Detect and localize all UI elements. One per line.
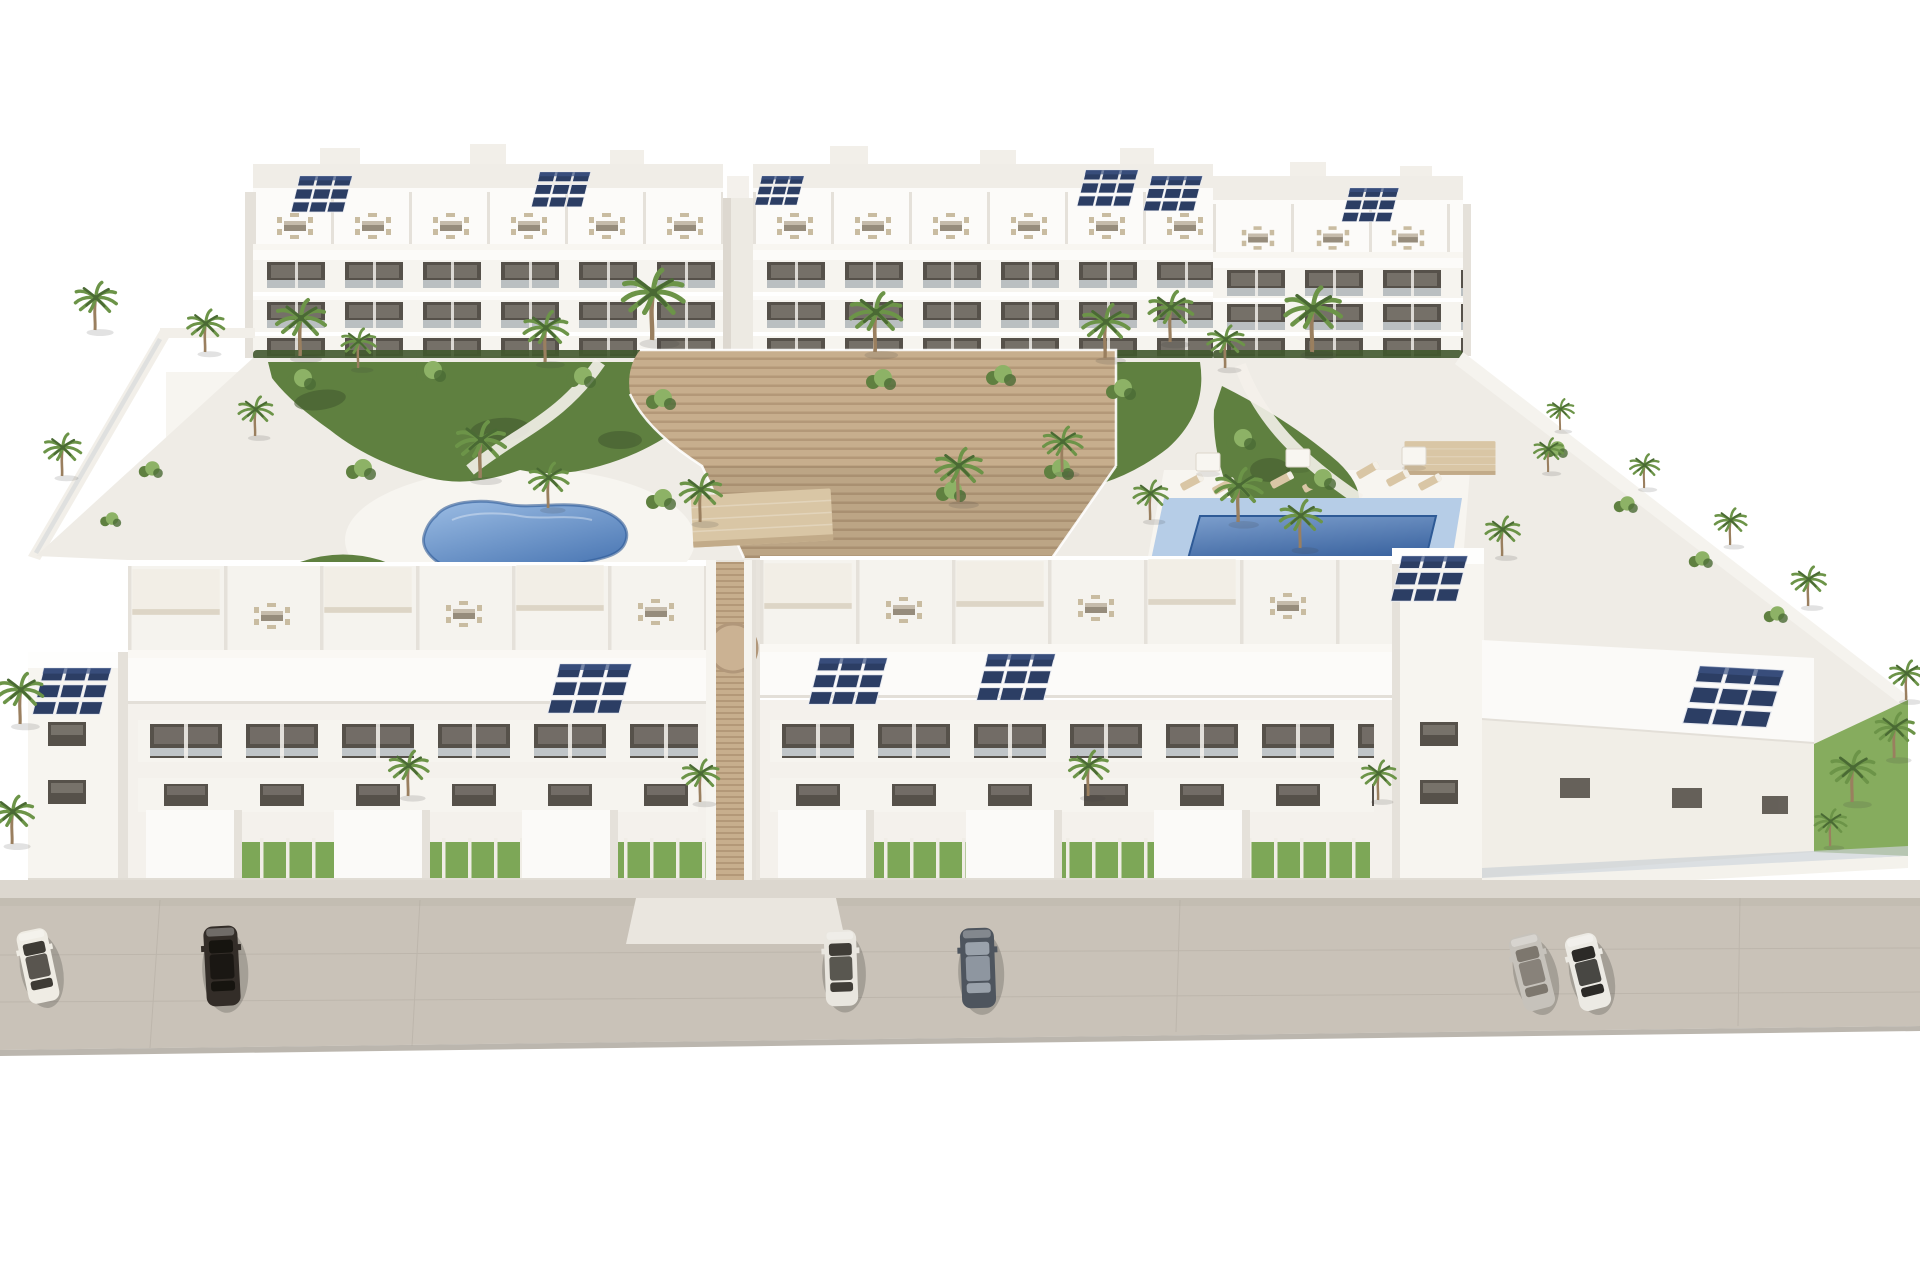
terrace-pergola xyxy=(956,561,1043,607)
entrance-apron xyxy=(626,898,846,944)
solar-panel-array xyxy=(32,668,111,714)
solar-panel-array xyxy=(531,172,590,207)
terrace-pergola xyxy=(516,565,603,611)
solar-panel-array xyxy=(1391,556,1468,601)
rear-right-wing xyxy=(753,164,1213,360)
solar-panel-array xyxy=(808,658,887,704)
terrace-pergola xyxy=(324,567,411,613)
central-passage xyxy=(706,560,760,890)
terrace-pergola xyxy=(132,569,219,615)
solar-panel-array xyxy=(976,654,1055,700)
solar-panel-array xyxy=(1143,176,1202,211)
architectural-rendering xyxy=(0,0,1920,1280)
solar-panel-array xyxy=(1077,170,1138,206)
solar-panel-array xyxy=(1342,188,1399,222)
solar-panel-array xyxy=(755,176,804,205)
solar-panel-array xyxy=(1683,665,1784,728)
garden-pergola xyxy=(691,488,834,547)
scene-canvas xyxy=(0,0,1920,1280)
parasol xyxy=(1196,453,1220,477)
solar-panel-array xyxy=(548,664,632,713)
terrace-pergola xyxy=(764,563,851,609)
rear-center-wall xyxy=(723,176,753,358)
parasol xyxy=(1402,447,1426,471)
terrace-pergola xyxy=(1148,559,1235,605)
parasol xyxy=(1286,449,1310,473)
solar-panel-array xyxy=(291,176,352,212)
